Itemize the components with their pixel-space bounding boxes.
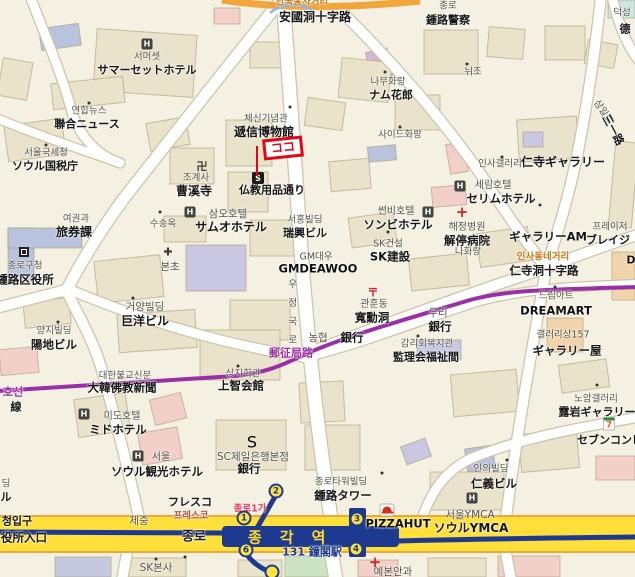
seven-icon: 7 — [603, 418, 615, 431]
map-label: SK본사 — [140, 563, 173, 574]
poi-dot — [554, 286, 557, 289]
map-label: 郵征局路 — [269, 348, 313, 359]
poi-dot — [501, 156, 504, 159]
church-icon: ✚ — [163, 246, 172, 259]
map-label: 수송옥 — [150, 219, 176, 229]
hotel-icon: H — [467, 493, 478, 504]
map-label: 德 — [620, 24, 631, 35]
map-label: 거양빌딩 — [126, 302, 165, 313]
sc-bank-icon: S — [247, 433, 257, 452]
map-label: サマーセットホテル — [98, 65, 197, 76]
building — [186, 245, 246, 291]
map-label: 양지빌딩 — [37, 326, 72, 336]
map-label: ミドホテル — [89, 424, 147, 436]
map-label: 미도호텔 — [104, 412, 141, 422]
map-label: ソウル国税庁 — [12, 161, 78, 172]
map-label: 갤러리상157 — [536, 330, 589, 340]
map-label: 나무화랑 — [371, 77, 406, 87]
map-label: 鍾路警察 — [426, 15, 470, 26]
map-label: 서울 — [152, 453, 170, 463]
poi-dot — [88, 102, 91, 105]
building — [401, 438, 432, 465]
map-label: 露岩ギャラリー — [559, 407, 635, 418]
subway-exit-badge: 4 — [349, 542, 364, 557]
gov-icon — [19, 247, 29, 257]
poi-dot — [596, 384, 599, 387]
map-label: SK建設 — [370, 251, 410, 263]
map-label: 인사동네거리 — [517, 252, 569, 262]
map-label: 종로 — [439, 1, 456, 11]
map-label: ギャラリーAM — [509, 231, 587, 243]
poi-dot — [289, 106, 292, 109]
map-label: 안국동사거리 — [276, 0, 328, 7]
map-label: 鍾路タワー — [314, 490, 372, 502]
subway-exit-badge — [265, 565, 280, 577]
building — [214, 8, 240, 24]
building — [545, 26, 585, 60]
subway-exit-badge: 1 — [237, 511, 252, 526]
building — [428, 558, 486, 577]
map-label: ル — [1, 492, 12, 503]
map-label: GMDEAWOO — [279, 263, 358, 275]
building — [285, 556, 331, 577]
map-label: 제중 — [129, 516, 148, 527]
map-label: 본초 — [160, 262, 179, 273]
map-label: セリムホテル — [467, 193, 536, 205]
map-label: 仏教用品通り — [239, 185, 305, 196]
map-label: 종로타워빌딩 — [315, 477, 367, 487]
subway-exit-badge: 6 — [239, 543, 254, 558]
map-label: 관훈동 — [360, 300, 388, 310]
map-label: 해정병원 — [449, 223, 486, 233]
map-label: 曹溪寺 — [176, 185, 212, 197]
map-label: 聯合ニュース — [54, 119, 119, 130]
poi-dot — [155, 558, 158, 561]
building — [0, 58, 33, 101]
hotel-icon: H — [133, 451, 144, 462]
map-label: 瑞興ビル — [283, 228, 327, 239]
map-label: 딩 — [2, 479, 11, 489]
map-label: 서울YMCA — [445, 510, 494, 521]
map-label: 청입구 — [2, 516, 32, 527]
map-label: 解停病院 — [444, 235, 490, 247]
map-label: 조계사 — [183, 173, 209, 183]
poi-dot — [417, 335, 420, 338]
poi-dot — [387, 231, 390, 234]
poi-dot — [45, 144, 48, 147]
building — [304, 97, 346, 130]
building — [55, 557, 111, 577]
building — [329, 158, 371, 191]
subway-exit-badge: 2 — [269, 484, 284, 499]
hospital-icon: + — [369, 553, 382, 571]
map-label: 종로 — [182, 531, 206, 544]
map-label: 銀行 — [341, 332, 364, 344]
map-label: 仁寺ギャラリー — [521, 156, 605, 168]
poi-dot — [184, 556, 187, 559]
post-icon: 〒 — [368, 284, 379, 300]
map-label: 鍾路区役所 — [0, 274, 54, 286]
poi-dot — [466, 63, 469, 66]
map-label: 프레스코 — [174, 511, 209, 521]
map-canvas[interactable]: 종각역서머셋サマーセットホテル연합뉴스聯合ニュース서울국세청ソウル国税庁안국동사… — [0, 0, 635, 577]
map-label: 仁義ビル — [471, 478, 517, 490]
map-label: ソウルYMCA — [434, 522, 509, 534]
map-label: 체신기념관 — [244, 114, 288, 124]
poi-dot — [539, 204, 542, 207]
map-label: 監理会福祉間 — [393, 352, 459, 363]
map-label: 나화랑 — [455, 247, 481, 257]
poi-dot — [57, 321, 60, 324]
map-label: 役所入口 — [1, 532, 47, 544]
building — [608, 141, 635, 228]
hotel-icon: H — [79, 409, 90, 420]
map-label: 농협 — [308, 333, 327, 344]
here-marker-flag: ココ — [262, 135, 304, 160]
map-label: 131 鐘閣駅 — [282, 547, 342, 558]
map-label: セブンコンビ — [577, 435, 635, 446]
hotel-icon: H — [423, 207, 434, 218]
hotel-icon: H — [185, 207, 196, 218]
map-label: 寬勳洞 — [355, 312, 390, 324]
poi-dot — [159, 211, 162, 214]
map-label: 인사갤러리 — [478, 159, 522, 169]
map-label: 巨洋ビル — [121, 315, 169, 327]
map-label: 大韓佛教新聞 — [88, 382, 157, 394]
poi-dot — [384, 71, 387, 74]
map-label: 뉘조 — [464, 67, 481, 77]
map-label: 종로구청 — [8, 261, 43, 271]
map-label: 上智会館 — [218, 380, 264, 392]
map-label: ソウル観光ホテル — [111, 466, 203, 478]
building — [450, 369, 519, 417]
map-label: 銀行 — [238, 463, 261, 475]
map-label: 仁寺洞十字路 — [510, 265, 579, 277]
map-label: 서흥빌딩 — [288, 215, 323, 225]
poi-dot — [399, 126, 402, 129]
map-label: 덕성 — [613, 8, 630, 18]
pizza-icon — [380, 504, 395, 517]
map-label: 드림아트 — [539, 291, 574, 301]
map-label: 우정국로 — [286, 279, 296, 353]
poi-dot — [381, 472, 384, 475]
map-label: D — [626, 255, 635, 266]
building — [149, 393, 186, 426]
hotel-icon: H — [142, 39, 153, 50]
map-label: 세림호텔 — [475, 181, 512, 191]
building — [487, 26, 525, 59]
building — [367, 145, 396, 162]
subway-exit-badge: 3 — [350, 512, 365, 527]
map-label: ブレイジ — [586, 235, 630, 246]
map-label: PIZZAHUT — [365, 518, 430, 530]
map-label: DREAMART — [520, 305, 592, 317]
building — [408, 253, 469, 291]
map-label: 우리 — [428, 308, 447, 319]
building — [523, 132, 543, 147]
map-label: ソンビホテル — [364, 219, 433, 231]
poi-dot — [237, 365, 240, 368]
map-label: 사이드화랑 — [378, 130, 422, 140]
map-label: 서머셋 — [134, 52, 160, 62]
station-name-label: 종각역 — [248, 526, 343, 547]
map-label: 銀行 — [429, 321, 452, 333]
here-marker-pole — [256, 146, 258, 176]
manji-icon: 卍 — [197, 158, 208, 174]
map-label: 陽地ビル — [31, 339, 77, 351]
map-label: ギャラリー屋 — [533, 345, 602, 357]
map-label: 썬비호텔 — [378, 207, 415, 217]
map-label: 감리회복지관 — [401, 339, 453, 349]
map-label: 인의빌딩 — [474, 464, 509, 474]
map-label: 安國洞十字路 — [279, 11, 351, 23]
map-label: 연합뉴스 — [72, 106, 107, 116]
map-label: SK건설 — [373, 239, 403, 249]
map-label: 서울국세청 — [24, 148, 68, 158]
subway-icon: S — [252, 172, 264, 184]
map-label: 여권과 — [63, 214, 89, 224]
map-label: サムオホテル — [195, 221, 267, 233]
building — [596, 456, 635, 480]
map-label: 프레이저 — [593, 222, 628, 232]
hospital-icon: + — [456, 203, 469, 221]
map-label: 노암갤러리 — [574, 394, 618, 404]
hotel-icon: H — [455, 181, 466, 192]
map-label: 삼오호텔 — [209, 209, 248, 220]
map-label: フレスコ — [168, 497, 212, 508]
map-label: ナム花郎 — [369, 90, 413, 101]
poi-dot — [506, 459, 509, 462]
map-label: 線 — [11, 402, 22, 413]
poi-dot — [132, 297, 135, 300]
building — [94, 255, 164, 304]
map-label: 旅券課 — [56, 226, 92, 238]
building — [558, 359, 609, 393]
map-label: 호선 — [3, 387, 23, 398]
